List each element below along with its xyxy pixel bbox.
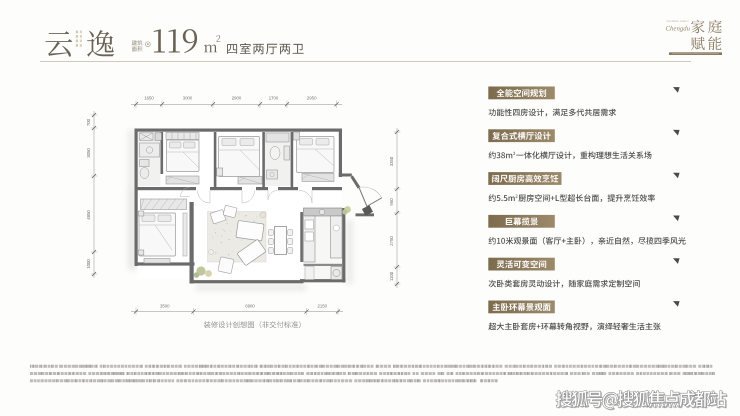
svg-text:2950: 2950 <box>307 96 317 101</box>
svg-text:CHENGDU FAMILY: CHENGDU FAMILY <box>667 20 690 23</box>
svg-text:1100: 1100 <box>389 271 394 281</box>
svg-text:3500: 3500 <box>160 304 170 309</box>
svg-text:3000: 3000 <box>183 96 193 101</box>
svg-text:6900: 6900 <box>245 304 255 309</box>
svg-text:2900: 2900 <box>232 96 242 101</box>
svg-text:700: 700 <box>86 118 91 126</box>
svg-text:1700: 1700 <box>269 96 279 101</box>
svg-text:2750: 2750 <box>389 236 394 246</box>
svg-text:2150: 2150 <box>317 304 327 309</box>
svg-text:3350: 3350 <box>389 156 394 166</box>
svg-text:1000: 1000 <box>86 259 91 269</box>
svg-text:1650: 1650 <box>144 96 154 101</box>
svg-text:950: 950 <box>389 198 394 206</box>
svg-text:3050: 3050 <box>86 148 91 158</box>
svg-text:Chengdu: Chengdu <box>666 26 691 33</box>
svg-text:4850: 4850 <box>86 210 91 220</box>
